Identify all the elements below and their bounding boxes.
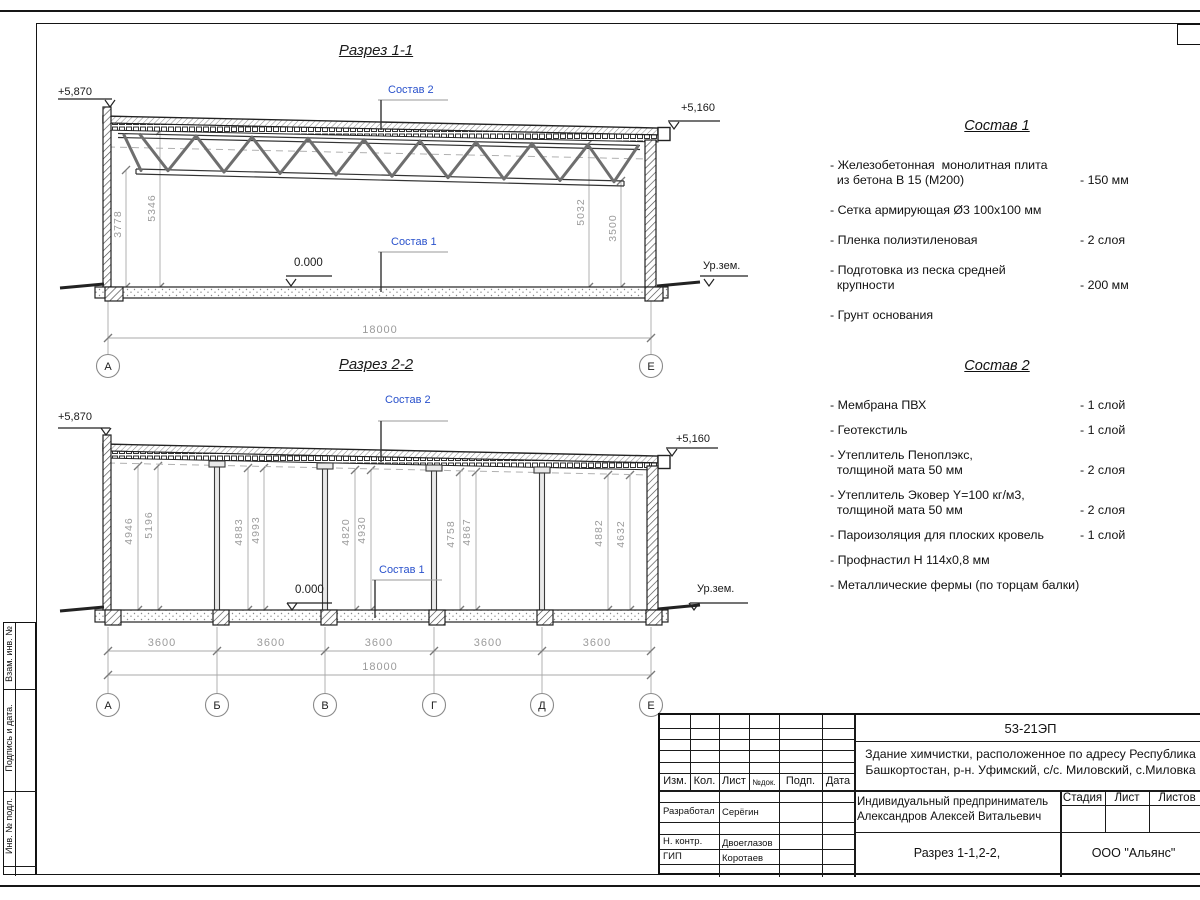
stamp-inv-label: Инв. № подл. — [4, 776, 14, 876]
item-name: - Грунт основания — [830, 308, 1080, 323]
item-value: - 1 слой — [1080, 423, 1164, 438]
col-ndok: №док. — [749, 778, 779, 787]
list-item: - Железобетонная монолитная плита из бет… — [830, 158, 1164, 188]
item-name: - Утеплитель Пеноплэкс, толщиной мата 50… — [830, 448, 1080, 478]
item-name: - Пароизоляция для плоских кровель — [830, 528, 1080, 543]
section2-vdim: 4883 — [233, 500, 245, 564]
role-name: Двоеглазов — [722, 838, 773, 849]
grid-bubble: А — [104, 700, 112, 712]
section1-ground-label: Ур.зем. — [703, 260, 740, 272]
description-line1: Здание химчистки, расположенное по адрес… — [856, 746, 1200, 762]
grid-bubble: Б — [213, 700, 220, 712]
section2-elev-zero: 0.000 — [295, 584, 324, 596]
col-kol: Кол. — [690, 775, 719, 787]
section2-spacing: 3600 — [221, 637, 321, 649]
grid-bubble-a: А — [104, 361, 112, 373]
grid-bubble: Е — [647, 700, 654, 712]
section1-dim-total: 18000 — [330, 324, 430, 336]
section2-spacing: 3600 — [329, 637, 429, 649]
item-value: - 200 мм — [1080, 278, 1164, 293]
item-name: - Железобетонная монолитная плита из бет… — [830, 158, 1080, 188]
item-name: - Подготовка из песка средней крупности — [830, 263, 1080, 293]
section2-title: Разрез 2-2 — [296, 356, 456, 373]
list-item: - Металлические фермы (по торцам балки) — [830, 578, 1164, 593]
section2-sostav2-label: Состав 2 — [385, 394, 431, 406]
section2-vdim: 4946 — [123, 499, 135, 563]
col-list: Лист — [719, 775, 749, 787]
section2-vdim: 4882 — [593, 501, 605, 565]
section1-sostav1-label: Состав 1 — [391, 236, 437, 248]
client-line2: Александров Алексей Витальевич — [857, 810, 1061, 825]
item-name: - Геотекстиль — [830, 423, 1080, 438]
section1-dim-3778: 3778 — [112, 192, 124, 256]
list-item: - Грунт основания — [830, 308, 1164, 323]
col-izm: Изм. — [660, 775, 690, 787]
section2-vdim: 4993 — [250, 498, 262, 562]
list-item: - Геотекстиль - 1 слой — [830, 423, 1164, 438]
org-name: ООО "Альянс" — [1060, 846, 1200, 860]
sostav2-panel: Состав 2 - Мембрана ПВХ - 1 слой - Геоте… — [830, 358, 1164, 603]
item-name: - Сетка армирующая Ø3 100х100 мм — [830, 203, 1080, 218]
left-stamp-column: Взам. инв. № Подпись и дата. Инв. № подл… — [3, 622, 36, 875]
sostav2-title: Состав 2 — [830, 358, 1164, 374]
section1-sostav2-label: Состав 2 — [388, 84, 434, 96]
grid-bubble-e: Е — [647, 361, 654, 373]
section2-vdim: 5196 — [143, 493, 155, 557]
item-value: - 150 мм — [1080, 173, 1164, 188]
item-value: - 2 слоя — [1080, 503, 1164, 518]
client-cell: Индивидуальный предприниматель Александр… — [857, 795, 1061, 825]
list-item: - Пароизоляция для плоских кровель - 1 с… — [830, 528, 1164, 543]
client-line1: Индивидуальный предприниматель — [857, 795, 1061, 810]
section1-dim-3500: 3500 — [607, 196, 619, 260]
list-item: - Мембрана ПВХ - 1 слой — [830, 398, 1164, 413]
section1-elev-right: +5,160 — [681, 102, 715, 114]
role-label: ГИП — [663, 851, 682, 862]
list-item: - Утеплитель Эковер Y=100 кг/м3, толщино… — [830, 488, 1164, 518]
list-item: - Профнастил Н 114х0,8 мм — [830, 553, 1164, 568]
section1-elev-zero: 0.000 — [294, 257, 323, 269]
stamp-podpis-label: Подпись и дата. — [4, 688, 14, 788]
grid-bubble: В — [321, 700, 328, 712]
list-item: - Пленка полиэтиленовая - 2 слоя — [830, 233, 1164, 248]
section1-dim-5346: 5346 — [146, 176, 158, 240]
col-podp: Подп. — [779, 775, 822, 787]
role-label: Разработал — [663, 806, 715, 817]
section2-elev-left: +5,870 — [58, 411, 92, 423]
section2-vdim: 4632 — [615, 502, 627, 566]
title-block: Изм. Кол. Лист №док. Подп. Дата Разработ… — [658, 713, 1200, 875]
section2-elev-right: +5,160 — [676, 433, 710, 445]
section2-spacing: 3600 — [438, 637, 538, 649]
section1-title: Разрез 1-1 — [296, 42, 456, 59]
grid-bubble: Д — [538, 700, 546, 712]
section2-sostav1-label: Состав 1 — [379, 564, 425, 576]
list-item: - Подготовка из песка средней крупности … — [830, 263, 1164, 293]
item-name: - Утеплитель Эковер Y=100 кг/м3, толщино… — [830, 488, 1080, 518]
section1-dim-5032: 5032 — [575, 180, 587, 244]
section2-vdim: 4820 — [340, 500, 352, 564]
section1-elev-left: +5,870 — [58, 86, 92, 98]
sostav1-title: Состав 1 — [830, 118, 1164, 134]
section2-dim-total: 18000 — [330, 661, 430, 673]
section2-vdim: 4758 — [445, 502, 457, 566]
item-name: - Профнастил Н 114х0,8 мм — [830, 553, 1080, 568]
drawing-sheet: { "section1": { "title": "Разрез 1-1", "… — [0, 0, 1200, 900]
item-value: - 2 слоя — [1080, 463, 1164, 478]
list-item: - Утеплитель Пеноплэкс, толщиной мата 50… — [830, 448, 1164, 478]
role-name: Серёгин — [722, 807, 759, 818]
section2-spacing: 3600 — [547, 637, 647, 649]
list-item: - Сетка армирующая Ø3 100х100 мм — [830, 203, 1164, 218]
section2-ground-label: Ур.зем. — [697, 583, 734, 595]
item-value: - 1 слой — [1080, 528, 1164, 543]
role-label: Н. контр. — [663, 836, 702, 847]
project-description: Здание химчистки, расположенное по адрес… — [856, 746, 1200, 778]
item-name: - Металлические фермы (по торцам балки) — [830, 578, 1080, 593]
section2-vdim: 4867 — [461, 500, 473, 564]
sheets-label: Листов — [1149, 792, 1200, 804]
description-line2: Башкортостан, р-н. Уфимский, с/с. Миловс… — [856, 762, 1200, 778]
col-data: Дата — [822, 775, 854, 787]
sostav1-panel: Состав 1 - Железобетонная монолитная пли… — [830, 118, 1164, 338]
item-value: - 2 слоя — [1080, 233, 1164, 248]
role-name: Коротаев — [722, 853, 763, 864]
item-value: - 1 слой — [1080, 398, 1164, 413]
section2-vdim: 4930 — [356, 498, 368, 562]
item-name: - Мембрана ПВХ — [830, 398, 1080, 413]
stage-label: Стадия — [1060, 792, 1105, 804]
sheet-label: Лист — [1105, 792, 1149, 804]
item-name: - Пленка полиэтиленовая — [830, 233, 1080, 248]
grid-bubble: Г — [431, 700, 437, 712]
drawing-title: Разрез 1-1,2-2, — [854, 846, 1060, 860]
section2-spacing: 3600 — [112, 637, 212, 649]
doc-code: 53-21ЭП — [854, 721, 1200, 736]
